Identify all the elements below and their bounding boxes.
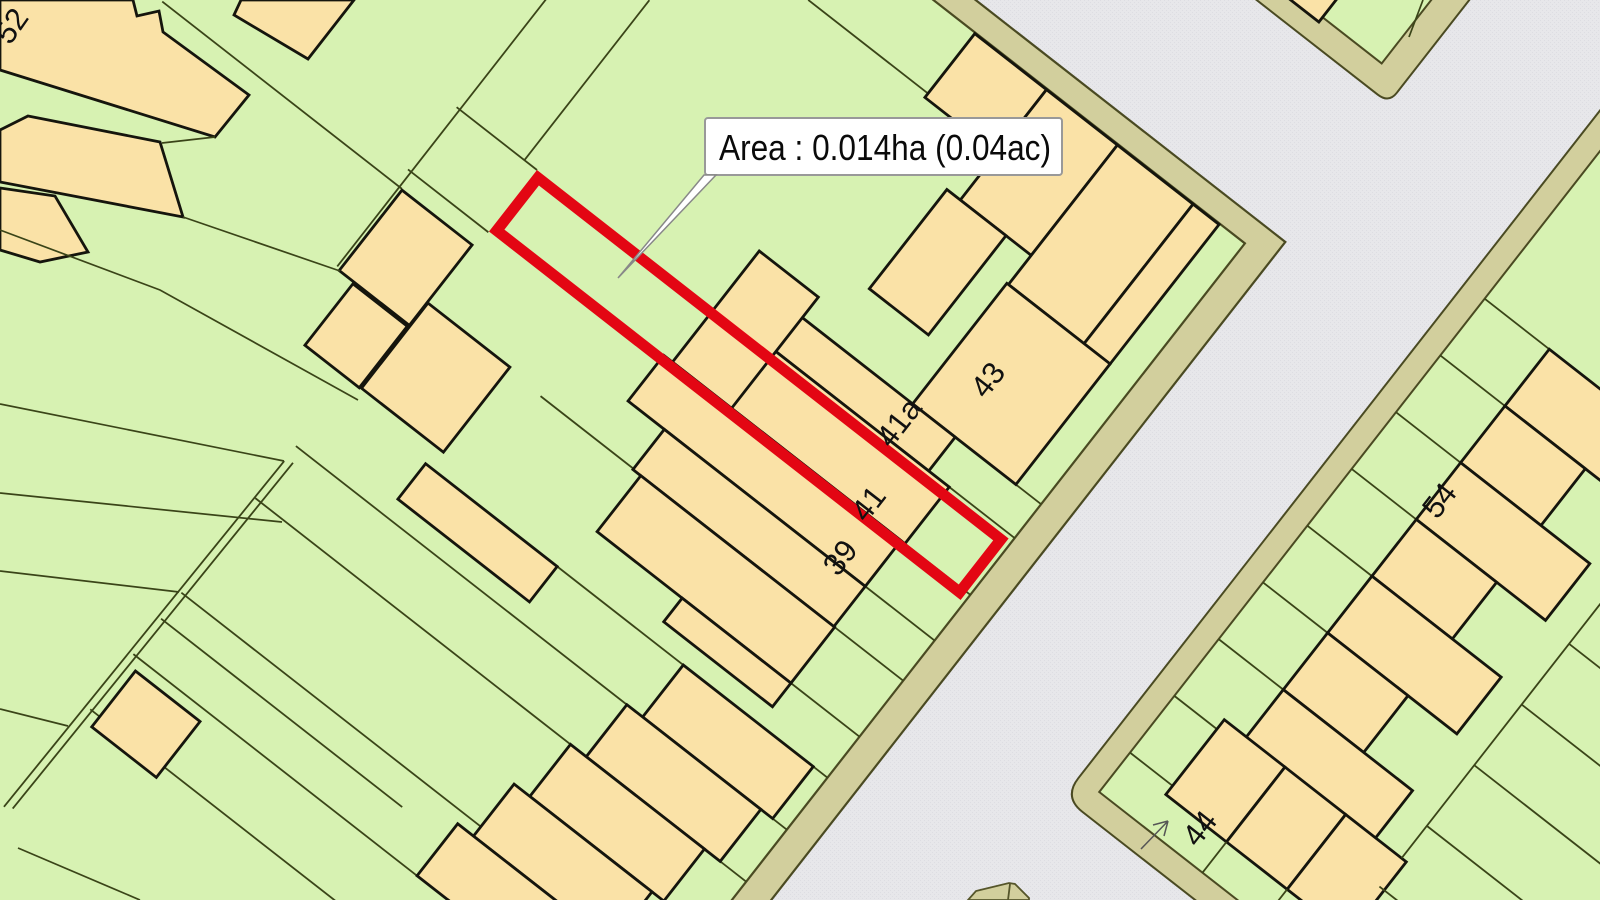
svg-text:Area : 0.014ha (0.04ac): Area : 0.014ha (0.04ac) (719, 127, 1051, 168)
